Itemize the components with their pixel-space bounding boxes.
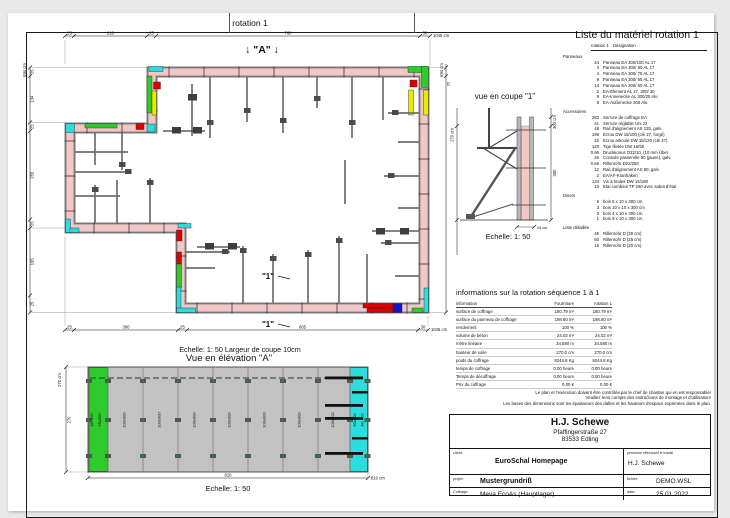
material-qty: 1 xyxy=(563,216,599,222)
info-cell: poids du coffrage xyxy=(456,357,532,364)
brace-foot xyxy=(244,108,251,113)
info-row: surface de coffrage180.79 m²180.79 m² xyxy=(456,308,612,316)
material-row: 1bois 9 x 10 x 300 cm xyxy=(563,216,711,222)
dim-total: 1045 cm xyxy=(431,327,448,332)
clamp-dot xyxy=(177,380,179,382)
section-a-marker: ↓ "A" ↓ xyxy=(245,44,279,56)
clamp-dot xyxy=(142,455,144,457)
alignment-rail-bar xyxy=(325,452,363,455)
info-cell: 0.00 € xyxy=(574,381,612,388)
panel-size-label: 100x300 xyxy=(192,412,197,428)
formwork-corner-piece xyxy=(66,124,75,133)
file-label: fichier: xyxy=(627,477,638,481)
alignment-rail-stub xyxy=(352,437,368,440)
info-row: hauteur de voile270.0 cm270.0 cm xyxy=(456,349,612,357)
dim-label: 25 xyxy=(30,301,35,306)
info-cell: information xyxy=(456,300,532,307)
alignment-rail-bar xyxy=(325,377,363,380)
title-block: H.J. Schewe Pfaffingerstraße 27 83533 Ed… xyxy=(449,414,711,496)
formwork-corner-piece xyxy=(393,304,402,313)
clamp-dot xyxy=(349,455,351,457)
info-cell: 9244.8 Kg xyxy=(532,357,574,364)
alignment-rail-stub xyxy=(352,391,368,394)
date-value: 25.01.2022 xyxy=(656,491,689,498)
panel-size-label: 100x300 xyxy=(122,412,127,428)
rotation-info-table: informations sur la rotation séquence 1 … xyxy=(456,288,612,389)
console-brace xyxy=(489,131,517,148)
brace-foot xyxy=(270,256,277,261)
dim-label: 255 xyxy=(30,171,35,179)
company-name: H.J. Schewe xyxy=(450,417,710,429)
material-row: 15Rillenrohr D (20 cm) xyxy=(563,243,711,249)
brace-foot xyxy=(240,248,247,253)
disclaimer-note: Le plan et l'exécution doivent être cont… xyxy=(430,390,711,406)
dim-label: 30 xyxy=(423,31,428,36)
formwork-corner-piece xyxy=(177,230,183,241)
formwork-corner-piece xyxy=(424,288,429,313)
info-cell: 270.0 cm xyxy=(574,349,612,356)
info-row: poids du coffrage9244.8 Kg9244.8 Kg xyxy=(456,357,612,365)
panel-size-label: 100x300 xyxy=(227,412,232,428)
push-pull-prop xyxy=(470,147,516,218)
disclaimer-line: Les bases des dimensions sont les épaiss… xyxy=(430,401,711,406)
brace-foot xyxy=(388,173,395,178)
panel-size-label: 100x300 xyxy=(330,412,335,428)
material-qty: 8 xyxy=(563,100,599,106)
worker-value: H.J. Schewe xyxy=(628,460,665,467)
floor-plan-view: 2521025760301045 cm2530025665301045 cm25… xyxy=(20,14,466,344)
info-cell: 0.00 heure xyxy=(574,373,612,380)
dim-label: 25 xyxy=(67,31,72,36)
alignment-rail-bar xyxy=(325,404,363,407)
info-cell: 180.79 m² xyxy=(574,308,612,315)
dim-label: 25 xyxy=(30,69,35,74)
dim-label: 25 xyxy=(30,124,35,129)
section-dim-bottom: 25 cm xyxy=(537,226,547,230)
clamp-dot xyxy=(177,455,179,457)
clamp-dot xyxy=(247,380,249,382)
material-qty: 15 xyxy=(563,243,599,249)
info-cell: surface de coffrage xyxy=(456,308,532,315)
client-value: EuroSchal Homepage xyxy=(495,458,567,465)
elevation-view: Vue en élévation "A"AE 30055x300100x3001… xyxy=(52,342,388,496)
clamp-dot xyxy=(177,419,179,421)
date-label: date: xyxy=(627,490,635,494)
material-qty: 13 xyxy=(563,184,599,190)
material-list: Liste du matériel rotation 1 rotation 1 … xyxy=(563,29,711,248)
material-list-col-designation: Désignation xyxy=(613,43,636,49)
info-cell: 34.580 m xyxy=(532,340,574,347)
formwork-corner-piece xyxy=(152,91,157,115)
rail-clamp xyxy=(172,127,181,134)
project-label: projet: xyxy=(453,477,464,481)
section-panel xyxy=(530,117,534,220)
info-row: volume de béton24.02 m³24.02 m³ xyxy=(456,332,612,340)
panel-size-label: AE 300 xyxy=(89,413,94,427)
rail-clamp xyxy=(376,228,385,235)
clamp-dot xyxy=(212,419,214,421)
dim-label: 195 xyxy=(30,258,35,266)
info-cell: volume de béton xyxy=(456,332,532,339)
formwork-corner-piece xyxy=(410,80,417,87)
clamp-dot xyxy=(282,419,284,421)
clamp-dot xyxy=(142,419,144,421)
clamp-dot xyxy=(107,380,109,382)
clamp-dot xyxy=(317,380,319,382)
formwork-corner-piece xyxy=(147,76,152,113)
clamp-dot xyxy=(212,380,214,382)
panel-size-label: 100x300 xyxy=(297,412,302,428)
formwork-label: Coffrage: xyxy=(453,490,469,494)
info-cell: 270.0 cm xyxy=(532,349,574,356)
brace-foot xyxy=(336,238,343,243)
formwork-corner-piece xyxy=(154,82,161,89)
formwork-corner-piece xyxy=(409,90,414,115)
clamp-dot xyxy=(282,380,284,382)
clamp-dot xyxy=(317,455,319,457)
info-cell: 9244.8 Kg xyxy=(574,357,612,364)
elevation-title: Vue en élévation "A" xyxy=(186,353,272,364)
info-row: Temps de décoffrage0.00 heure0.00 heure xyxy=(456,373,612,381)
clamp-dot xyxy=(367,419,369,421)
info-cell: 100 % xyxy=(532,324,574,331)
client-label: client: xyxy=(453,451,463,455)
info-cell: 24.02 m³ xyxy=(532,332,574,339)
section-scale: Echelle: 1: 50 xyxy=(486,232,531,241)
elevation-dim-bottom-total: 810 cm xyxy=(371,476,385,481)
info-cell: 0.00 heure xyxy=(532,373,574,380)
section-dim-right-total: 300 cm xyxy=(552,115,557,129)
formwork-corner-piece xyxy=(177,264,182,288)
info-cell: temps de coffrage xyxy=(456,365,532,372)
elevation-dim-left-total: 270 cm xyxy=(57,373,62,387)
formwork-corner-piece xyxy=(149,67,163,72)
panel-size-label: 100x300 xyxy=(262,412,267,428)
formwork-corner-piece xyxy=(422,67,429,88)
rotation-info-body: informationFourniturerotation 1surface d… xyxy=(456,300,612,389)
brace-foot xyxy=(280,118,287,123)
rotation-info-title: informations sur la rotation séquence 1 … xyxy=(456,288,612,297)
formwork-corner-piece xyxy=(367,308,395,313)
marker-arrow xyxy=(278,276,290,279)
info-cell: hauteur de voile xyxy=(456,349,532,356)
info-cell: Prix du coffrage xyxy=(456,381,532,388)
brace-foot xyxy=(92,187,99,192)
dim-label: 25 xyxy=(149,31,154,36)
brace-foot xyxy=(147,180,154,185)
section-panel xyxy=(517,117,521,220)
brace-foot xyxy=(314,96,321,101)
material-list-body: Panneaux44Panneau EA 300/100 AL 174Panne… xyxy=(563,54,711,249)
brace-foot xyxy=(349,120,356,125)
material-designation: EA-Außenecke 300 Alu xyxy=(603,100,647,106)
info-cell: rendement xyxy=(456,324,532,331)
dim-label: 30 xyxy=(421,325,426,330)
formwork-corner-piece xyxy=(412,308,423,313)
clamp-dot xyxy=(367,380,369,382)
clamp-dot xyxy=(247,419,249,421)
panel-size-label: 50x300 xyxy=(352,413,357,427)
material-list-header: rotation 1 Désignation xyxy=(591,43,707,51)
dim-label: 210 xyxy=(107,31,115,36)
rail-clamp xyxy=(193,127,202,134)
dim-label: 760 xyxy=(285,31,293,36)
panel-size-label: AE 300 xyxy=(360,413,365,427)
info-row: Prix du coffrage0.00 €0.00 € xyxy=(456,381,612,389)
panel-size-label: 55x300 xyxy=(97,413,102,427)
clamp-dot xyxy=(88,455,90,457)
formwork-cell: Coffrage: Meva EcoAs (Hauptlager) xyxy=(450,488,624,500)
info-cell: rotation 1 xyxy=(574,300,612,307)
formwork-corner-piece xyxy=(136,124,144,130)
info-cell: 180.79 m² xyxy=(532,308,574,315)
formwork-corner-piece xyxy=(70,228,79,233)
elevation-dim-bottom-seg: 810 xyxy=(225,473,233,478)
clamp-dot xyxy=(349,380,351,382)
clamp-dot xyxy=(142,380,144,382)
brace-foot xyxy=(125,169,132,174)
panel-size-label: 100x300 xyxy=(157,412,162,428)
brace-foot xyxy=(222,249,229,254)
info-cell: surface du panneau de coffrage xyxy=(456,316,532,323)
rail-clamp xyxy=(400,228,409,235)
section-1-marker-inner: "1" xyxy=(262,272,274,281)
plan-sheet-view: { "plan": { "title": "rotation 1", "mark… xyxy=(0,0,730,516)
clamp-dot xyxy=(247,455,249,457)
section-wall-concrete xyxy=(522,126,530,220)
clamp-dot xyxy=(107,419,109,421)
company-address-line2: 83533 Edling xyxy=(450,436,710,443)
section-view: vue en coupe "1"270 cm300 cm30025 cmEche… xyxy=(440,85,570,250)
dim-total-right: 694 cm xyxy=(439,63,444,77)
material-list-col-qty: rotation 1 xyxy=(591,43,613,49)
formwork-corner-piece xyxy=(424,90,429,115)
file-value: DEMO.WSL xyxy=(656,478,691,485)
clamp-dot xyxy=(88,380,90,382)
dim-label: 665 xyxy=(299,325,307,330)
formwork-corner-piece xyxy=(177,252,182,264)
material-row: 8EA-Außenecke 300 Alu xyxy=(563,100,711,106)
info-row: mètre linéaire34.580 m34.580 m xyxy=(456,340,612,348)
brace-foot xyxy=(305,252,312,257)
clamp-dot xyxy=(367,455,369,457)
material-row: 13Etai combiné TP 250 avec sabot d'étai xyxy=(563,184,711,190)
info-cell: Fourniture xyxy=(532,300,574,307)
dim-label: 300 xyxy=(123,325,131,330)
info-cell: 34.580 m xyxy=(574,340,612,347)
brace-foot xyxy=(119,162,126,167)
info-cell: mètre linéaire xyxy=(456,340,532,347)
formwork-corner-piece xyxy=(177,308,196,313)
material-designation: Rillenrohr D (20 cm) xyxy=(603,243,641,249)
info-header-row: informationFourniturerotation 1 xyxy=(456,300,612,308)
info-cell: 24.02 m³ xyxy=(574,332,612,339)
brace-foot xyxy=(392,110,399,115)
dim-total-left: 694 cm xyxy=(22,63,27,77)
clamp-dot xyxy=(107,455,109,457)
info-cell: 0.00 heure xyxy=(532,365,574,372)
worker-cell: personne effectuant le travail H.J. Sche… xyxy=(624,449,710,474)
marker-arrow xyxy=(278,324,290,327)
info-cell: 198.60 m² xyxy=(574,316,612,323)
client-cell: client: EuroSchal Homepage xyxy=(450,449,624,474)
file-cell: fichier: DEMO.WSL xyxy=(624,475,710,487)
rail-clamp xyxy=(228,243,237,250)
rail-clamp xyxy=(205,243,214,250)
clamp-dot xyxy=(282,455,284,457)
formwork-value: Meva EcoAs (Hauptlager) xyxy=(480,491,554,498)
info-row: rendement100 %100 % xyxy=(456,324,612,332)
section-dim-right-seg: 300 xyxy=(552,169,557,177)
brace-foot xyxy=(207,120,214,125)
date-cell: date: 25.01.2022 xyxy=(624,488,710,500)
material-designation: Etai combiné TP 250 avec sabot d'étai xyxy=(603,184,676,190)
clamp-dot xyxy=(317,419,319,421)
section-title: vue en coupe "1" xyxy=(475,92,536,101)
project-cell: projet: Mustergrundriß xyxy=(450,475,624,487)
info-row: temps de coffrage0.00 heure0.00 heure xyxy=(456,365,612,373)
elevation-dim-left-seg: 270 xyxy=(67,416,72,424)
info-cell: Temps de décoffrage xyxy=(456,373,532,380)
elevation-scale: Echelle: 1: 50 xyxy=(206,484,251,493)
dim-total: 1045 cm xyxy=(433,33,450,38)
formwork-corner-piece xyxy=(85,124,117,129)
worker-label: personne effectuant le travail xyxy=(627,451,673,455)
dim-label: 25 xyxy=(67,325,72,330)
formwork-corner-piece xyxy=(147,124,155,132)
project-value: Mustergrundriß xyxy=(480,478,532,485)
material-designation: bois 9 x 10 x 300 cm xyxy=(603,216,642,222)
section-dim-left: 270 cm xyxy=(450,128,455,142)
info-cell: 198.60 m² xyxy=(532,316,574,323)
dim-label: 25 xyxy=(30,221,35,226)
title-block-company: H.J. Schewe Pfaffingerstraße 27 83533 Ed… xyxy=(450,415,710,448)
plan-title: rotation 1 xyxy=(232,18,268,28)
prop-foot xyxy=(466,214,475,219)
dim-label: 25 xyxy=(180,325,185,330)
material-list-title: Liste du matériel rotation 1 xyxy=(563,29,711,41)
company-address-line1: Pfaffingerstraße 27 xyxy=(450,429,710,436)
formwork-corner-piece xyxy=(178,224,191,229)
formwork-corner-piece xyxy=(66,219,71,233)
formwork-corner-piece xyxy=(363,304,393,309)
info-cell: 100 % xyxy=(574,324,612,331)
info-cell: 0.00 heure xyxy=(574,365,612,372)
rail-clamp xyxy=(188,94,197,101)
clamp-dot xyxy=(212,455,214,457)
section-1-marker-outer: "1" xyxy=(262,320,274,329)
dim-label: 134 xyxy=(30,95,35,103)
info-cell: 0.00 € xyxy=(532,381,574,388)
brace-foot xyxy=(385,240,392,245)
info-row: surface du panneau de coffrage198.60 m²1… xyxy=(456,316,612,324)
